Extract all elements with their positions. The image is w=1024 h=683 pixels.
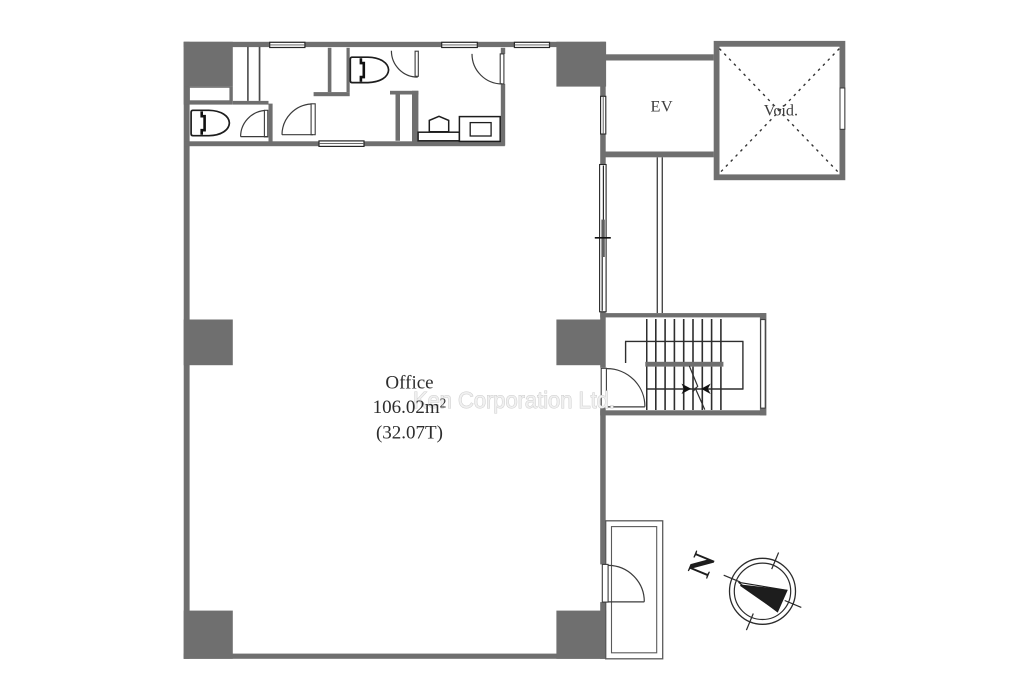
- svg-text:Office: Office: [385, 373, 433, 394]
- svg-text:106.02m2: 106.02m2: [373, 396, 447, 419]
- svg-text:Void.: Void.: [764, 102, 798, 120]
- svg-text:EV: EV: [651, 96, 674, 115]
- svg-text:(32.07T): (32.07T): [376, 423, 443, 444]
